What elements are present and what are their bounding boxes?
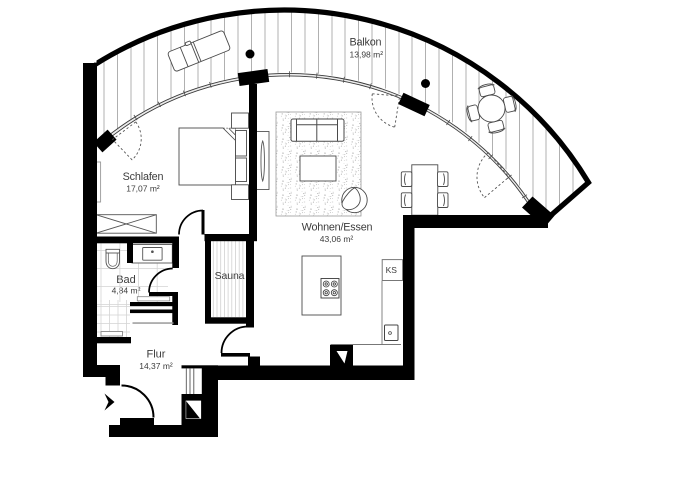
svg-text:4,84 m²: 4,84 m²	[112, 286, 141, 296]
svg-text:13,98 m²: 13,98 m²	[350, 50, 384, 60]
svg-text:Balkon: Balkon	[350, 37, 382, 49]
svg-text:Schlafen: Schlafen	[123, 171, 164, 183]
svg-text:Bad: Bad	[116, 274, 136, 286]
svg-text:43,06 m²: 43,06 m²	[320, 234, 354, 244]
svg-text:14,37 m²: 14,37 m²	[139, 361, 173, 371]
svg-text:17,07 m²: 17,07 m²	[126, 184, 160, 194]
svg-text:Wohnen/Essen: Wohnen/Essen	[302, 222, 373, 234]
svg-text:Flur: Flur	[147, 349, 166, 361]
svg-text:KS: KS	[386, 265, 398, 275]
svg-text:Sauna: Sauna	[215, 270, 245, 282]
